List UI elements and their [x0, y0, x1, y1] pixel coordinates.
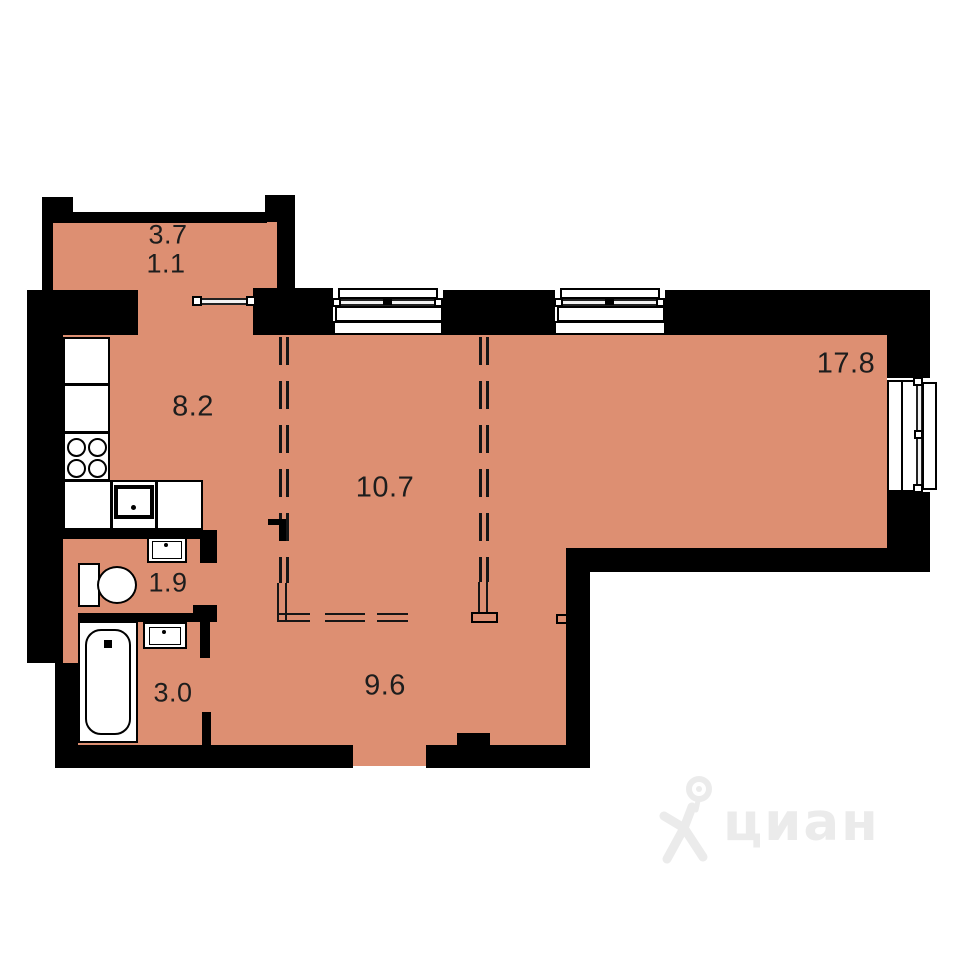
dashed-partition — [479, 337, 482, 582]
window-sill — [335, 306, 443, 322]
cian-person-icon — [655, 770, 719, 866]
window-sill — [557, 306, 665, 322]
dashed-partition — [325, 613, 365, 622]
dashed-partition — [286, 337, 289, 583]
sink-drain — [164, 543, 168, 547]
floor-plan: 3.7 1.1 8.2 10.7 17.8 1.9 3.0 9.6 циан — [0, 0, 960, 960]
dashed-partition — [486, 337, 489, 582]
window-mullion — [605, 299, 614, 305]
wall-segment — [27, 290, 63, 663]
wall-segment — [253, 288, 333, 335]
wall-segment — [200, 605, 210, 658]
window-mullion — [383, 299, 392, 305]
room-label-living: 17.8 — [817, 348, 875, 381]
wall-segment — [277, 195, 295, 292]
main-floor-lower — [63, 548, 566, 745]
wall-segment — [566, 548, 930, 572]
toilet-bowl — [97, 566, 137, 604]
burner-icon — [88, 459, 107, 478]
window-sill — [333, 321, 443, 335]
wall-segment — [443, 290, 555, 335]
room-label-balcony-full: 3.7 — [148, 220, 187, 251]
wall-segment — [457, 733, 490, 745]
dashed-partition-corner — [277, 613, 310, 622]
wall-segment — [55, 745, 353, 768]
partition-end-cap — [556, 614, 569, 624]
room-label-balcony-reduced: 1.1 — [146, 249, 185, 280]
room-label-hallway: 9.6 — [364, 670, 406, 703]
counter-divider — [155, 482, 158, 528]
room-label-room: 10.7 — [356, 472, 414, 505]
kitchen-cabinet-icon — [63, 337, 110, 385]
dashed-partition — [279, 337, 282, 583]
burner-icon — [67, 459, 86, 478]
sink-drain — [131, 505, 136, 510]
kitchen-sink-icon — [114, 485, 154, 519]
partition-junction-mark — [279, 519, 286, 541]
bathtub-drain — [104, 640, 112, 648]
door-end-cap — [192, 296, 202, 306]
window-sill — [560, 288, 660, 299]
room-label-bathroom: 3.0 — [153, 678, 192, 709]
wall-segment — [887, 290, 930, 378]
cian-watermark-text: циан — [723, 792, 880, 853]
balcony-door-icon — [197, 298, 253, 305]
room-label-kitchen: 8.2 — [172, 391, 214, 424]
burner-icon — [67, 438, 86, 457]
partition-end-cap — [471, 612, 498, 623]
cian-watermark: циан — [655, 770, 925, 880]
dashed-partition — [377, 613, 408, 622]
room-label-wc: 1.9 — [148, 568, 187, 599]
entrance-doorway-floor — [353, 742, 426, 766]
sink-drain — [162, 630, 166, 634]
wall-segment — [426, 745, 590, 768]
wall-segment — [202, 712, 211, 745]
window-sill — [338, 288, 438, 299]
kitchen-cabinet-icon — [63, 384, 110, 433]
wall-segment — [42, 197, 53, 293]
dashed-partition-end — [478, 582, 488, 614]
door-end-cap — [246, 296, 256, 306]
burner-icon — [88, 438, 107, 457]
wall-segment — [200, 530, 217, 563]
wall-segment — [566, 548, 590, 768]
window-sill — [922, 382, 937, 490]
counter-divider — [110, 482, 113, 528]
window-sill — [554, 321, 666, 335]
